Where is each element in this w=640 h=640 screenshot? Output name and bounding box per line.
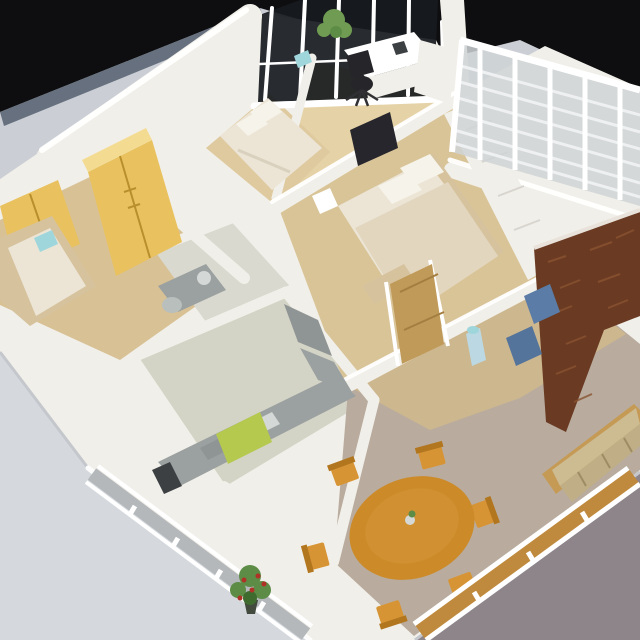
toilet: [162, 297, 182, 313]
sink: [197, 271, 211, 285]
model-photo: [0, 0, 640, 640]
